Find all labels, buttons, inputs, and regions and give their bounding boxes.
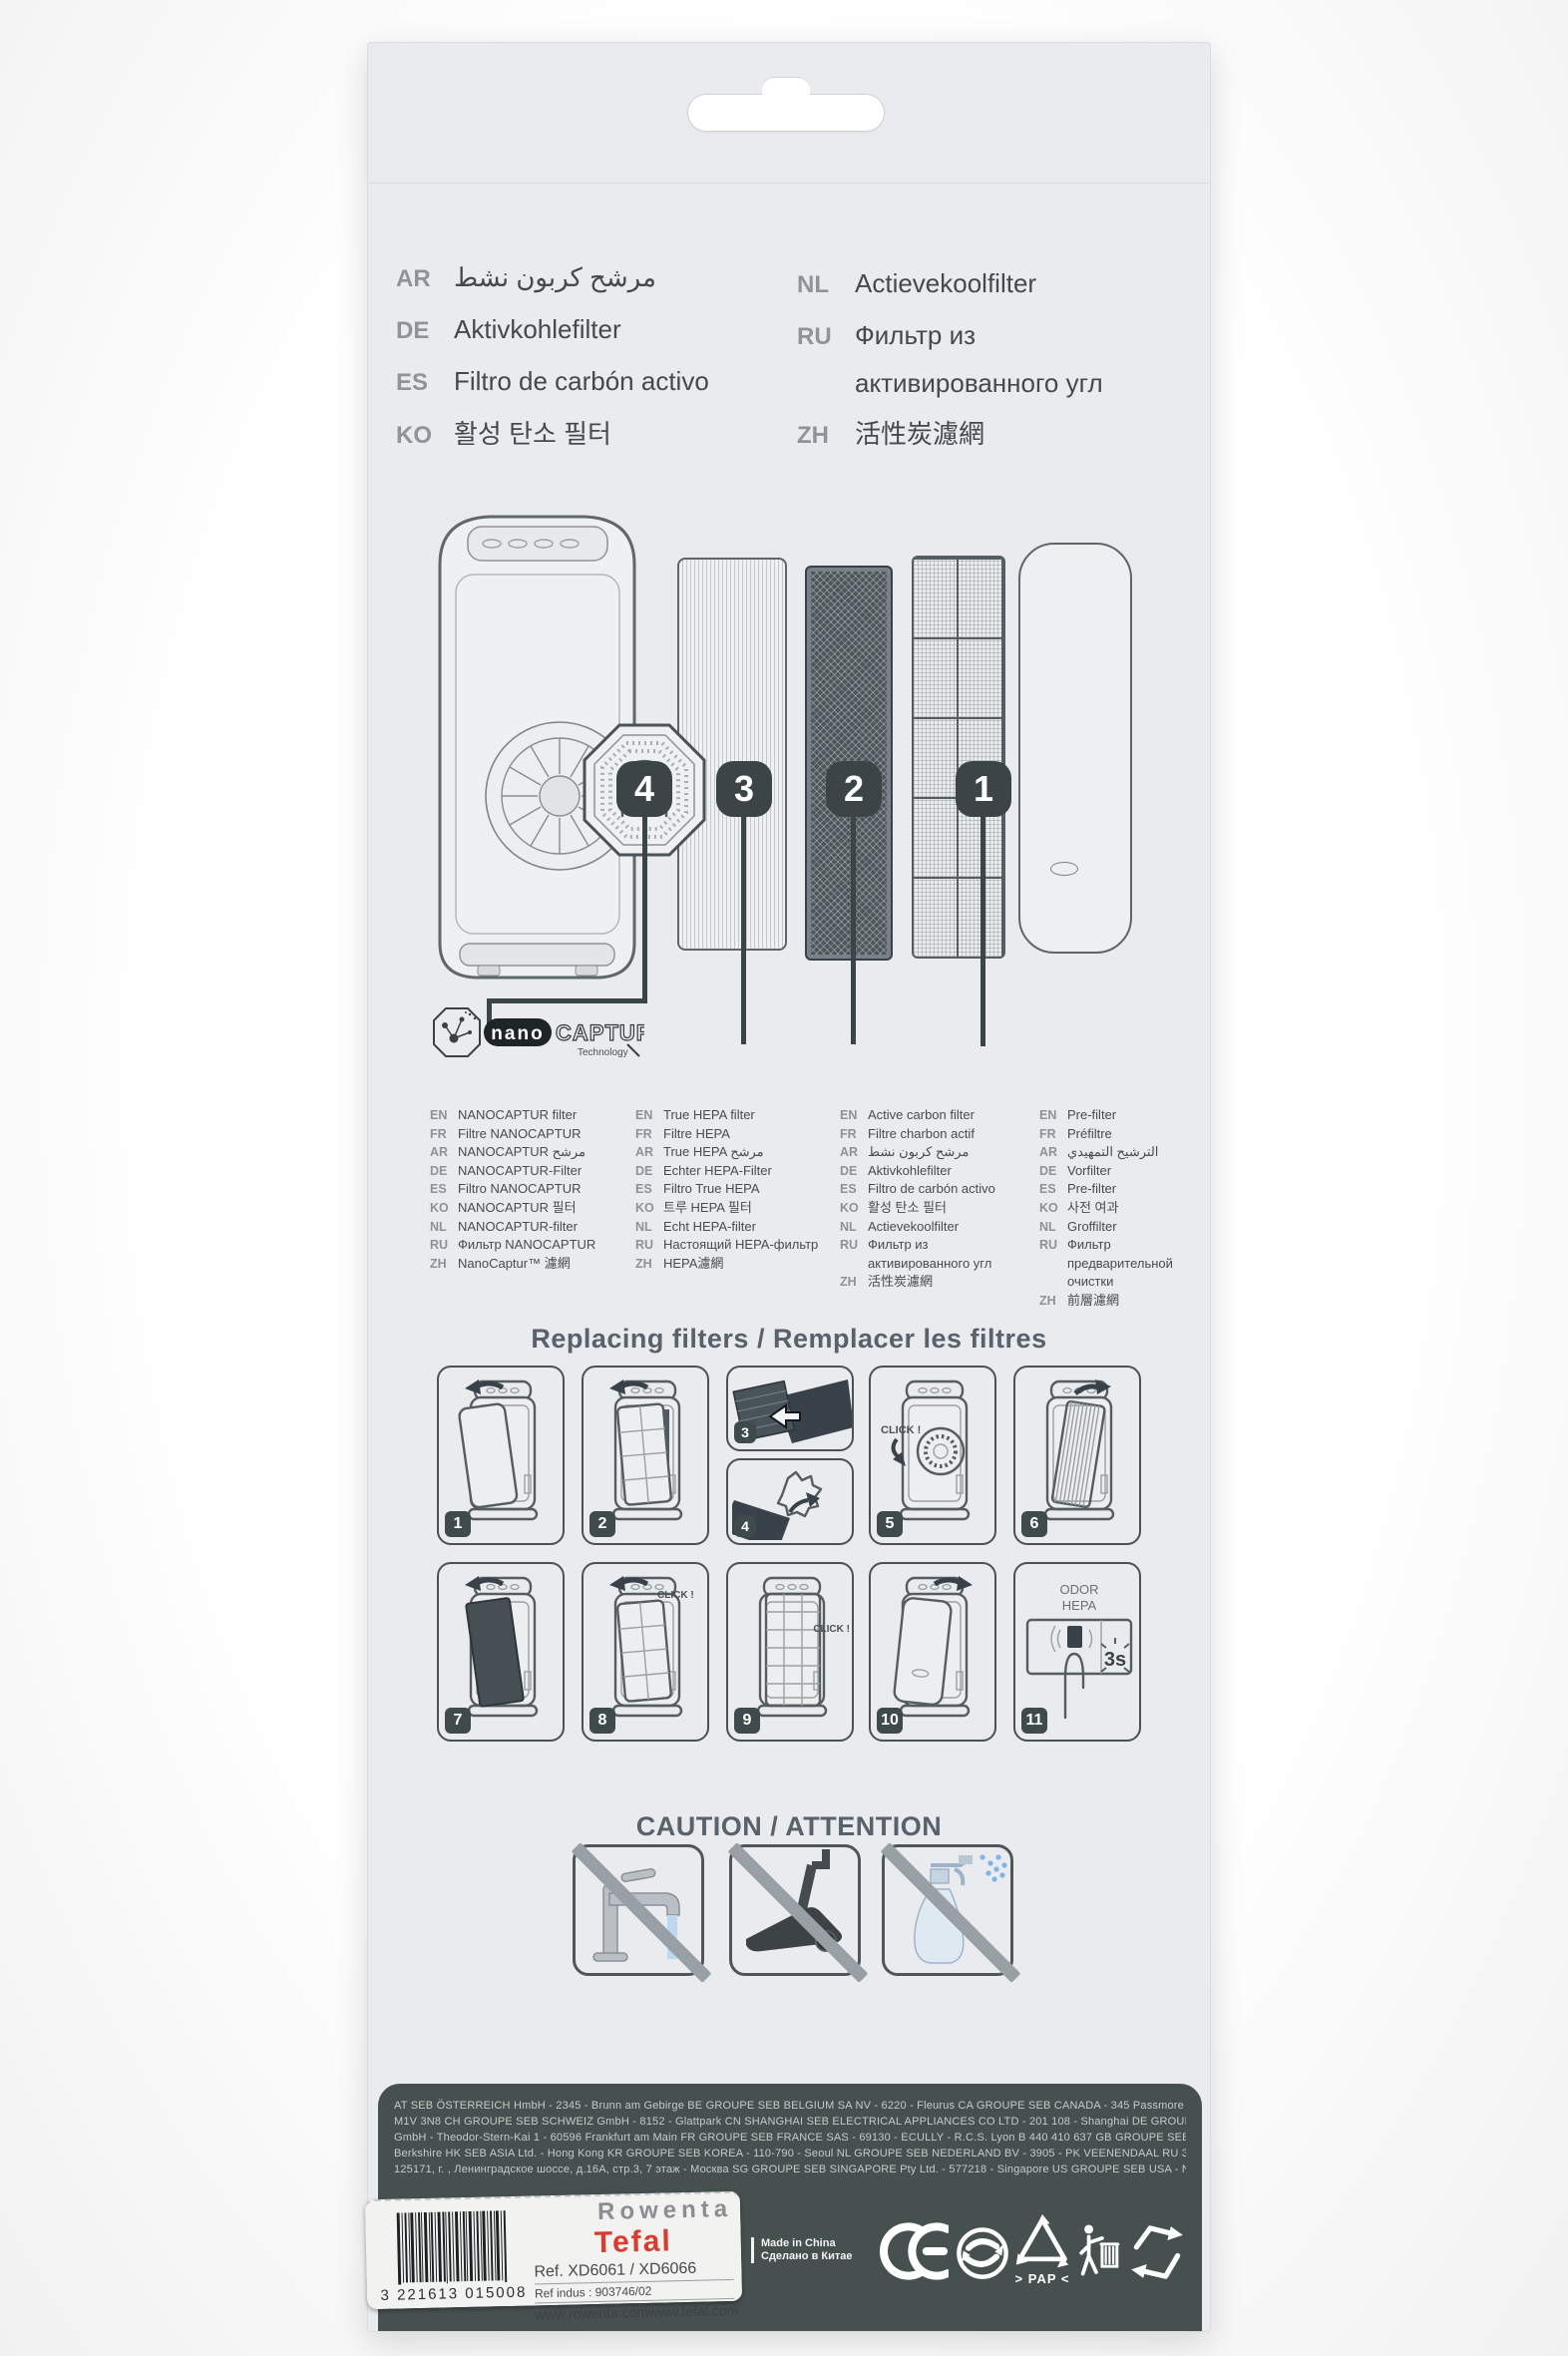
filter-row: очистки [1039, 1273, 1173, 1292]
instruction-panel-7: 7 [437, 1562, 565, 1742]
odor-label: ODOR [1060, 1582, 1099, 1597]
panel-number-chip: 4 [734, 1515, 756, 1537]
instruction-panel-10: 10 [869, 1562, 996, 1742]
panel-2-illustration [588, 1375, 707, 1525]
filter-row: DEEchter HEPA-Filter [635, 1162, 818, 1181]
tefal-url: www.tefal.com [648, 2302, 739, 2320]
ce-mark [875, 2221, 949, 2281]
filter-row: KONANOCAPTUR 필터 [430, 1199, 595, 1218]
product-label: 3 221613 015008 Rowenta Tefal Ref. XD606… [365, 2191, 742, 2310]
panel-number-chip: 8 [589, 1708, 615, 1734]
filter-row: активированного угл [840, 1255, 995, 1274]
panel-number-chip: 9 [734, 1708, 760, 1734]
lang-text: Filtro de carbón activo [454, 366, 709, 396]
caution-no-water [573, 1844, 704, 1976]
panel-number-chip: 3 [734, 1421, 756, 1443]
filter-row: RUФильтр NANOCAPTUR [430, 1236, 595, 1255]
front-panel-part [1018, 543, 1132, 954]
pap-label: > PAP < [1012, 2271, 1072, 2286]
filter-row: ENActive carbon filter [840, 1106, 995, 1125]
instruction-panel-9: CLICK ! 9 [726, 1562, 854, 1742]
filter-row: RUНастоящий HEPA-фильтр [635, 1236, 818, 1255]
click-label: CLICK ! [881, 1424, 921, 1436]
instruction-panel-8: CLICK ! 8 [582, 1562, 709, 1742]
lang-code: ES [396, 369, 454, 397]
filter-row: DENANOCAPTUR-Filter [430, 1162, 595, 1181]
logo-nano-text: nano [491, 1023, 544, 1044]
lang-text: Aktivkohlefilter [454, 314, 621, 344]
filter-row: ZH前層濾網 [1039, 1292, 1173, 1311]
panel-number-chip: 1 [445, 1511, 471, 1537]
filter-row: ENTrue HEPA filter [635, 1106, 818, 1125]
lang-text: Actievekoolfilter [855, 268, 1036, 298]
lang-row: KO활성 탄소 필터 [396, 414, 611, 451]
filter-row: ARTrue HEPA مرشح [635, 1143, 818, 1162]
rowenta-logo: Rowenta [533, 2195, 733, 2228]
click-label: CLICK ! [657, 1590, 694, 1601]
green-dot-icon [955, 2225, 1010, 2281]
barcode [381, 2210, 525, 2285]
leader-line-1 [980, 815, 985, 1046]
filter-row: FRFiltre charbon actif [840, 1125, 995, 1144]
filter-row: ZHNanoCaptur™ 濾網 [430, 1255, 595, 1274]
filter-row: KO사전 여과 [1039, 1199, 1173, 1218]
instruction-panel-5: CLICK ! 5 [869, 1366, 996, 1545]
lang-text: активированного угл [855, 368, 1103, 398]
click-label: CLICK ! [813, 1624, 850, 1635]
panel-5-illustration: CLICK ! [875, 1375, 994, 1525]
filter-row: ESPre-filter [1039, 1180, 1173, 1199]
filter-row: ESFiltro de carbón activo [840, 1180, 995, 1199]
lang-row: RUФильтр из [797, 320, 976, 351]
filter-row: RUФильтр из [840, 1236, 995, 1255]
footer-address-line: AT SEB ÖSTERREICH HmbH - 2345 - Brunn am… [394, 2098, 1186, 2114]
filter-row: ARالترشيح التمهيدي [1039, 1143, 1173, 1162]
instruction-panel-3: 3 [726, 1366, 854, 1451]
filter-column-true-hepa: ENTrue HEPA filter FRFiltre HEPA ARTrue … [635, 1106, 818, 1273]
lang-code: AR [396, 265, 454, 293]
instruction-panel-2: 2 [582, 1366, 709, 1545]
leader-line-3 [741, 815, 746, 1044]
hepa-label: HEPA [1062, 1598, 1097, 1613]
panel-number-chip: 10 [877, 1708, 903, 1734]
made-in-text: Made in China Сделано в Китае [751, 2237, 853, 2263]
panel-8-illustration: CLICK ! [588, 1572, 707, 1722]
panel-7-illustration [443, 1572, 563, 1722]
hold-time-label: 3s [1104, 1649, 1126, 1671]
logo-technology-text: Technology [578, 1047, 628, 1058]
lang-code: NL [797, 271, 855, 299]
caution-heading: CAUTION / ATTENTION [368, 1811, 1210, 1842]
lang-text: Фильтр из [855, 320, 976, 350]
panel-number-chip: 7 [445, 1708, 471, 1734]
filter-row: предварительной [1039, 1255, 1173, 1274]
filter-row: NLActievekoolfilter [840, 1218, 995, 1237]
package-crease [368, 183, 1210, 184]
rowenta-url: www.rowenta.com [535, 2304, 648, 2323]
filter-row: FRPréfiltre [1039, 1125, 1173, 1144]
tefal-logo: Tefal [533, 2223, 733, 2262]
nanocaptur-logo: nano CAPTUR Technology [430, 1004, 644, 1060]
lang-text: 활성 탄소 필터 [454, 419, 611, 449]
package-back-panel: ARمرشح كربون نشط DEAktivkohlefilter ESFi… [367, 42, 1211, 2332]
caution-no-spray [882, 1844, 1013, 1976]
leader-line-4 [642, 815, 647, 1000]
recycling-pap-mark: > PAP < [1012, 2213, 1072, 2289]
filter-row: NLEcht HEPA-filter [635, 1218, 818, 1237]
filter-row: KO활성 탄소 필터 [840, 1199, 995, 1218]
caution-no-vacuum [729, 1844, 861, 1976]
leader-line-4-horizontal [487, 998, 647, 1003]
step-badge-4: 4 [616, 761, 672, 817]
pre-filter-part [912, 556, 1005, 959]
step-badge-1: 1 [956, 761, 1011, 817]
tidy-man-icon [1072, 2223, 1120, 2281]
filter-column-nanocaptur: ENNANOCAPTUR filter FRFiltre NANOCAPTUR … [430, 1106, 595, 1273]
lang-code: RU [797, 323, 855, 351]
filter-row: DEAktivkohlefilter [840, 1162, 995, 1181]
panel-6-illustration [1019, 1375, 1139, 1525]
lang-row: ESFiltro de carbón activo [396, 366, 709, 397]
footer-address-line: M1V 3N8 CH GROUPE SEB SCHWEIZ GmbH - 815… [394, 2114, 1186, 2130]
panel-number-chip: 11 [1021, 1708, 1047, 1734]
filter-row: FRFiltre NANOCAPTUR [430, 1125, 595, 1144]
barcode-digits: 3 221613 015008 [373, 2283, 535, 2304]
replacing-filters-heading: Replacing filters / Remplacer les filtre… [368, 1324, 1210, 1355]
footer-address-line: GmbH - Theodor-Stern-Kai 1 - 60596 Frank… [394, 2130, 1186, 2146]
filter-row: FRFiltre HEPA [635, 1125, 818, 1144]
filter-row: ARمرشح كربون نشط [840, 1143, 995, 1162]
instruction-panel-1: 1 [437, 1366, 565, 1545]
lang-row: ZH活性炭濾網 [797, 414, 984, 451]
panel-11-illustration: ODOR HEPA 3s [1019, 1568, 1139, 1728]
label-text-block: Rowenta Tefal Ref. XD6061 / XD6066 Ref i… [533, 2195, 735, 2323]
filter-row: KO트루 HEPA 필터 [635, 1199, 818, 1218]
step-badge-2: 2 [826, 761, 882, 817]
recycling-triangle-icon [1012, 2213, 1072, 2269]
panel-10-illustration [875, 1572, 994, 1722]
step-badge-3: 3 [716, 761, 772, 817]
filter-row: ESFiltro True HEPA [635, 1180, 818, 1199]
photo-backdrop: ARمرشح كربون نشط DEAktivkohlefilter ESFi… [0, 0, 1568, 2356]
filter-row: ZHHEPA濾網 [635, 1255, 818, 1274]
lang-text: مرشح كربون نشط [454, 262, 656, 292]
resy-recycling-icon [1126, 2221, 1188, 2283]
instruction-panel-11: ODOR HEPA 3s 11 [1013, 1562, 1141, 1742]
logo-captur-text: CAPTUR [556, 1020, 644, 1045]
panel-1-illustration [443, 1375, 563, 1525]
filter-row: ENPre-filter [1039, 1106, 1173, 1125]
lang-row: NLActievekoolfilter [797, 268, 1036, 299]
filter-column-active-carbon: ENActive carbon filter FRFiltre charbon … [840, 1106, 995, 1292]
panel-number-chip: 5 [877, 1511, 903, 1537]
footer-address-line: 125171, г. , Ленинградское шоссе, д.16А,… [394, 2161, 1186, 2177]
filter-row: RUФильтр [1039, 1236, 1173, 1255]
lang-text: 活性炭濾網 [855, 419, 984, 449]
lang-code: KO [396, 422, 454, 450]
filter-row: ENNANOCAPTUR filter [430, 1106, 595, 1125]
footer-address-line: Berkshire HK SEB ASIA Ltd. - Hong Kong K… [394, 2146, 1186, 2161]
lang-row: активированного угл [797, 368, 1103, 399]
instruction-panel-6: 6 [1013, 1366, 1141, 1545]
panel-number-chip: 2 [589, 1511, 615, 1537]
lang-row: ARمرشح كربون نشط [396, 262, 656, 293]
instruction-panel-4: 4 [726, 1458, 854, 1545]
lang-code: DE [396, 317, 454, 345]
euro-hang-slot [687, 94, 885, 132]
lang-code: ZH [797, 422, 855, 450]
filter-row: NLGroffilter [1039, 1218, 1173, 1237]
leader-line-2 [851, 815, 856, 1044]
filter-row: ZH活性炭濾網 [840, 1273, 995, 1292]
panel-9-illustration: CLICK ! [732, 1572, 852, 1722]
filter-row: ARNANOCAPTUR مرشح [430, 1143, 595, 1162]
panel-number-chip: 6 [1021, 1511, 1047, 1537]
filter-column-pre-filter: ENPre-filter FRPréfiltre ARالترشيح التمه… [1039, 1106, 1173, 1311]
lang-row: DEAktivkohlefilter [396, 314, 621, 345]
filter-row: DEVorfilter [1039, 1162, 1173, 1181]
brand-mark-oval [1050, 862, 1078, 876]
filter-row: NLNANOCAPTUR-filter [430, 1218, 595, 1237]
filter-row: ESFiltro NANOCAPTUR [430, 1180, 595, 1199]
